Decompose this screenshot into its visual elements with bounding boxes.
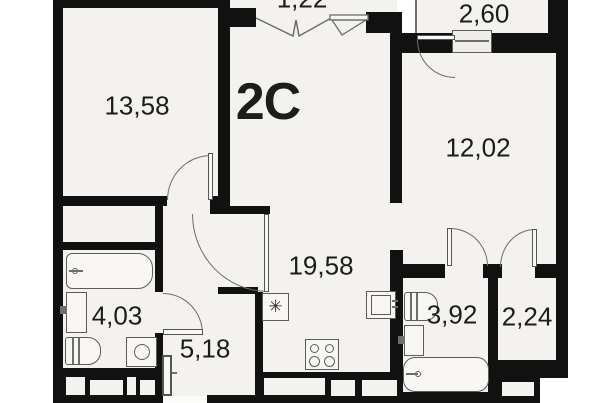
balcony-door-frame [452,30,492,53]
vent-shaft [331,380,355,396]
wall-bedroomleft-bottom [63,196,167,206]
toilet-tank-line [78,338,80,364]
entrance-door-leaf [162,355,172,396]
label-layout-code: 2C [236,72,300,132]
label-bathroom-left-area: 4,03 [92,301,143,332]
wall-left [53,0,63,403]
wall-niche-vertical [155,202,163,292]
wall-right [556,0,568,378]
stove-burner [310,344,319,353]
vent-shaft [502,382,534,396]
entrance-opening [163,396,207,403]
kitchen-sink-basin [371,295,391,315]
wall-bathleft-top [63,242,155,250]
wall-bedroomleft-door-block [210,196,230,214]
bathtub-faucet-line [406,373,418,375]
kitchen-sink-faucet [392,300,398,302]
label-hallway-area: 5,18 [180,334,231,365]
wall-bathright-bottom [398,392,490,403]
fridge-symbol: ✳ [262,293,289,321]
vent-shaft [140,380,155,395]
kitchen-sink-faucet [392,306,398,308]
sink-faucet [60,306,67,314]
vent-shaft [127,377,136,395]
toilet-tank-line [410,293,412,320]
wall-hall-bottom [207,395,263,403]
outside-bottom-right [540,378,605,403]
door-leaf-living [264,214,269,292]
washing-machine-drum [134,344,150,360]
sink-symbol [404,325,424,356]
wall-living-bedroomright-upper [390,33,402,203]
door-leaf-balcony-right [417,35,455,40]
wall-top-bedroom-left [63,0,230,8]
sink-symbol [66,292,87,333]
wall-balcony-right-block [548,0,556,33]
wall-living-hall-stub [230,206,270,214]
stove-burner [309,356,320,367]
door-leaf-bathroom-right [447,228,452,266]
entrance-door-handle [172,372,177,374]
label-wc-area: 2,24 [502,302,553,333]
toilet-tank-line [416,293,418,320]
label-balcony-right-area: 2,60 [459,0,510,30]
label-bedroom-right-area: 12,02 [445,133,510,164]
floor-plan: ✳ 13,58 2C 1,22 2,60 12,02 19,58 4,03 5,… [0,0,605,403]
sink-faucet [398,336,405,344]
stove-burner [325,344,334,353]
label-bathroom-right-area: 3,92 [427,300,478,331]
french-window-unit [230,8,402,56]
door-leaf-bedroom-left [208,153,213,200]
balcony-door-frame-line [455,40,489,42]
wall-bedroomleft-living [218,0,230,214]
toilet-tank-line [72,338,74,364]
bathtub-faucet-line [69,270,83,272]
door-leaf-wc [532,229,537,267]
stove-burner [324,356,335,367]
label-bedroom-left-area: 13,58 [104,91,169,122]
vent-shaft [264,378,325,395]
fridge-glyph: ✳ [268,297,282,317]
label-balcony-top-area: 1,22 [277,0,328,15]
balcony-right-edge-line [415,0,417,33]
wall-bathrow-top-a [402,264,445,278]
vent-shaft [66,377,85,395]
toilet-symbol [65,337,101,365]
vent-shaft [90,380,123,395]
vent-shaft [362,380,397,396]
label-kitchen-living-area: 19,58 [288,251,353,282]
